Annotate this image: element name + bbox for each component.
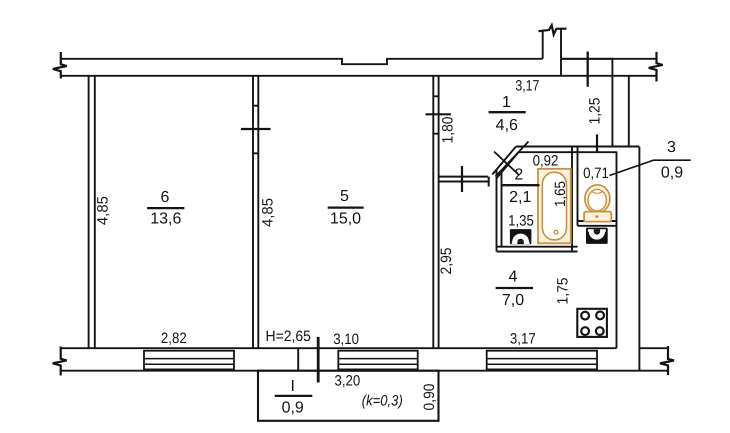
svg-text:3,10: 3,10 <box>333 331 359 348</box>
svg-text:2,1: 2,1 <box>509 189 531 206</box>
svg-text:0,9: 0,9 <box>282 399 304 416</box>
svg-text:1,35: 1,35 <box>508 213 534 230</box>
svg-text:3: 3 <box>667 139 676 156</box>
svg-text:1,25: 1,25 <box>586 98 603 125</box>
svg-text:H=2,65: H=2,65 <box>265 328 311 345</box>
svg-text:2: 2 <box>514 167 523 184</box>
svg-text:0,71: 0,71 <box>583 165 609 182</box>
svg-text:3,17: 3,17 <box>510 331 536 348</box>
svg-text:2,95: 2,95 <box>438 248 455 275</box>
svg-text:7,0: 7,0 <box>502 292 524 309</box>
svg-text:6: 6 <box>161 189 170 206</box>
svg-text:4,85: 4,85 <box>95 196 112 225</box>
svg-text:4: 4 <box>509 268 518 285</box>
svg-text:1,80: 1,80 <box>440 117 457 144</box>
svg-text:2,82: 2,82 <box>161 330 187 347</box>
svg-text:0,92: 0,92 <box>533 152 559 169</box>
svg-text:1,75: 1,75 <box>555 278 572 305</box>
svg-text:(k=0,3): (k=0,3) <box>362 393 403 410</box>
svg-text:4,85: 4,85 <box>260 198 277 227</box>
svg-text:0,9: 0,9 <box>661 165 683 182</box>
svg-text:I: I <box>290 378 294 395</box>
svg-text:15,0: 15,0 <box>330 211 361 228</box>
svg-text:3,17: 3,17 <box>515 78 539 95</box>
svg-text:4,6: 4,6 <box>496 117 518 134</box>
svg-text:3,20: 3,20 <box>335 373 361 390</box>
svg-text:1: 1 <box>502 94 511 111</box>
svg-text:13,6: 13,6 <box>150 211 181 228</box>
svg-text:0,90: 0,90 <box>421 384 438 411</box>
svg-text:5: 5 <box>340 188 349 205</box>
svg-text:1,65: 1,65 <box>552 181 569 207</box>
